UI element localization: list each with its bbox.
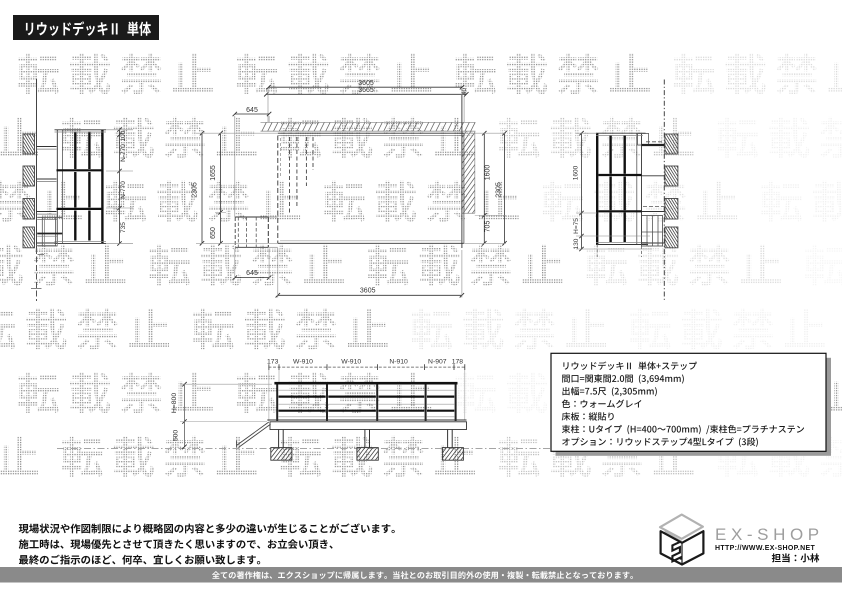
svg-text:178: 178: [452, 359, 464, 366]
svg-text:3605: 3605: [358, 80, 374, 87]
svg-text:173: 173: [267, 359, 279, 366]
svg-text:100: 100: [120, 130, 127, 141]
svg-text:40: 40: [462, 88, 468, 95]
svg-text:645: 645: [246, 270, 258, 277]
svg-text:W-910: W-910: [341, 359, 361, 366]
svg-text:735: 735: [120, 222, 127, 233]
svg-text:1600: 1600: [485, 165, 492, 181]
svg-text:H=75: H=75: [573, 218, 580, 234]
svg-text:N-910: N-910: [389, 359, 408, 366]
svg-text:W-910: W-910: [293, 359, 313, 366]
svg-text:H=800: H=800: [171, 393, 178, 413]
svg-text:705: 705: [485, 221, 492, 233]
svg-text:3665: 3665: [358, 87, 374, 94]
svg-text:N-770: N-770: [120, 144, 127, 162]
svg-text:N-770: N-770: [120, 181, 127, 199]
svg-text:650: 650: [210, 227, 217, 239]
svg-text:3605: 3605: [360, 288, 376, 295]
svg-text:500: 500: [173, 430, 180, 442]
svg-text:1600: 1600: [573, 165, 580, 180]
svg-text:EX-SHOP: EX-SHOP: [715, 525, 824, 544]
svg-text:2305: 2305: [192, 182, 199, 198]
svg-text:2305: 2305: [495, 182, 502, 198]
svg-text:HTTP://WWW.EX-SHOP.NET: HTTP://WWW.EX-SHOP.NET: [715, 545, 815, 552]
svg-text:1655: 1655: [210, 165, 217, 181]
svg-text:645: 645: [246, 107, 258, 114]
svg-text:N-907: N-907: [428, 359, 447, 366]
svg-text:130: 130: [573, 238, 580, 249]
